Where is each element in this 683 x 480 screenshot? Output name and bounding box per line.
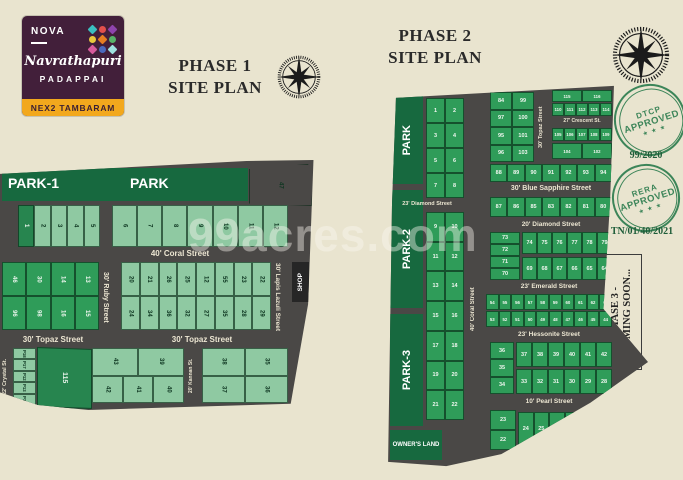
plot: 105: [552, 128, 564, 141]
plot-number: 54: [490, 300, 495, 305]
plot-number: 86: [513, 204, 519, 210]
phase2-park2: PARK-2: [390, 190, 423, 308]
plot-number: 53: [490, 317, 495, 322]
plot-number: 41: [585, 352, 591, 358]
plot: 32: [532, 369, 548, 394]
plot: 3: [51, 205, 67, 247]
plot: 71: [490, 256, 520, 268]
plot: 81: [577, 197, 594, 217]
plot-number: 10: [451, 224, 457, 230]
phase2-plot-row: 333231302928: [516, 369, 612, 394]
phase2-plot-row: 88899091929394: [490, 164, 612, 182]
street-label-hessonite: 23' Hessonite Street: [486, 331, 612, 338]
plot: 40: [564, 342, 580, 367]
plot-number: 115: [564, 94, 571, 99]
plot: 13: [426, 271, 445, 301]
phase2-park3: PARK-3: [390, 314, 423, 426]
plot: P14: [13, 394, 36, 405]
phase2-plot-row: 105106107108109: [552, 128, 612, 141]
phase2-shop-block: SHOP: [580, 403, 614, 436]
phase1-bottom-right-block: 38353736: [202, 348, 288, 403]
phase1-plan: PARK-1 PARK 47 12345 6789101112 40' Cora…: [0, 158, 316, 410]
plot-number: 29: [585, 379, 591, 385]
plot: 73: [490, 232, 520, 244]
plot: 45: [587, 311, 600, 327]
plot: 1: [18, 205, 34, 247]
plot-number: 13: [432, 283, 438, 289]
plot: 89: [507, 164, 524, 182]
plot-number: 37: [221, 386, 227, 393]
plot-number: 20: [451, 372, 457, 378]
plot-number: 11: [247, 223, 253, 229]
plot: 16: [445, 301, 464, 331]
plot: 49: [536, 311, 549, 327]
plot: 27: [565, 412, 581, 446]
plot-number: 28: [240, 310, 246, 317]
plot: 107: [576, 128, 588, 141]
plot: 82: [560, 197, 577, 217]
gem-grid-icon: [89, 26, 117, 54]
plot: 22: [490, 430, 516, 450]
plot-number: 89: [513, 170, 519, 176]
owners-land-block: OWNER'S LAND: [390, 430, 442, 460]
plot: 97: [490, 110, 512, 128]
plot-number: 26: [165, 276, 171, 283]
street-label-topaz-left: 30' Topaz Street: [0, 335, 118, 344]
plot: 95: [490, 127, 512, 145]
gem-icon: [109, 36, 116, 43]
plot-number: 116: [594, 94, 601, 99]
plot: 22: [445, 390, 464, 420]
plot-number: 65: [586, 266, 592, 272]
plot: 92: [560, 164, 577, 182]
compass-rose-icon: [277, 55, 321, 99]
plot-number: 12: [272, 223, 278, 230]
plot-number: 24: [127, 310, 133, 317]
plot-number: 97: [498, 115, 504, 121]
plot: 14: [445, 271, 464, 301]
plot-number: 46: [11, 276, 17, 283]
plot: 25: [177, 262, 196, 296]
plot: 23: [234, 262, 253, 296]
plot-number: 34: [499, 382, 505, 388]
plot-number: 88: [496, 170, 502, 176]
plot: 46: [574, 311, 587, 327]
phase1-center-block: 20212625125523222434363227352829: [121, 262, 271, 330]
park-label: PARK: [401, 125, 413, 155]
phase2-plot-column: 2322: [490, 410, 516, 450]
plot: 114: [600, 103, 612, 116]
plot-number: 114: [603, 107, 610, 112]
plot-number: 66: [571, 266, 577, 272]
plot-number: 25: [184, 276, 190, 283]
plot: 10: [445, 212, 464, 242]
plot: P12: [13, 371, 36, 382]
plot: 115: [552, 90, 582, 102]
plot-number: 16: [60, 310, 66, 317]
plot-number: 15: [432, 313, 438, 319]
plot-number: 20: [127, 276, 133, 283]
plot-number: 61: [578, 300, 583, 305]
plot: 56: [511, 294, 524, 310]
plot: 20: [445, 361, 464, 391]
plot-number: 14: [451, 283, 457, 289]
plot: 42: [596, 342, 612, 367]
plot-number: 103: [518, 150, 527, 156]
gem-icon: [88, 45, 98, 55]
plot: 11: [426, 242, 445, 272]
phase2-left-column-upper: 12345678: [426, 98, 464, 198]
plot-number: 35: [264, 358, 270, 365]
plot-number: 102: [593, 149, 600, 154]
plot: 13: [75, 262, 99, 296]
plot-number: 59: [553, 300, 558, 305]
phase1-title-line1: PHASE 1: [152, 55, 278, 77]
plot: 32: [177, 296, 196, 330]
plot-number: 28: [601, 379, 607, 385]
shop-label: SHOP: [297, 273, 304, 291]
plot: 35: [490, 359, 514, 376]
plot: 12: [196, 262, 215, 296]
plot-number: 27: [569, 426, 575, 432]
plot-number: 76: [556, 240, 562, 246]
plot-number: 12: [202, 276, 208, 283]
plot-number: 6: [453, 158, 456, 164]
plot-number: 38: [221, 358, 227, 365]
plot: 7: [426, 173, 445, 198]
plot-number: 2: [453, 108, 456, 114]
phase2-plot-row: 110111112113114: [552, 103, 612, 116]
plot-number: 78: [586, 240, 592, 246]
plot: 34: [140, 296, 159, 330]
plot-number: 11: [433, 254, 439, 260]
plot-number: 9: [434, 224, 437, 230]
plot: 101: [512, 127, 534, 145]
plot: 65: [582, 257, 597, 280]
plot-number: 1: [23, 224, 29, 227]
plot-number: 47: [565, 317, 570, 322]
plot-number: 94: [600, 170, 606, 176]
park3-label: PARK-3: [401, 350, 413, 390]
plot: 48: [549, 311, 562, 327]
plot: 61: [574, 294, 587, 310]
plot: 54: [486, 294, 499, 310]
plot: 35: [245, 348, 288, 376]
plot-number: 8: [453, 183, 456, 189]
plot-number: 34: [146, 310, 152, 317]
plot: 24: [518, 412, 534, 446]
gem-icon: [98, 35, 108, 45]
plot-number: 40: [569, 352, 575, 358]
phase1-park-strip: PARK-1 PARK: [2, 168, 248, 201]
plot-number: 92: [565, 170, 571, 176]
phase2-plot-row: 87868583828180: [490, 197, 612, 217]
plot-number: 107: [578, 132, 585, 137]
brand-name: NOVA: [31, 26, 65, 37]
plot-number: 85: [530, 204, 536, 210]
plot: 15: [426, 301, 445, 331]
gem-icon: [99, 26, 106, 33]
plot-number: 9: [197, 224, 203, 227]
plot: 46: [2, 262, 26, 296]
plot: 72: [490, 244, 520, 256]
plot: 102: [582, 143, 612, 159]
plot: 12: [445, 242, 464, 272]
plot: 40: [153, 376, 184, 404]
street-label-emerald: 23' Emerald Street: [486, 283, 612, 290]
plot-number: 35: [499, 365, 505, 371]
phase2-plot-row: 54555657585960616263: [486, 294, 612, 310]
plot-number: 109: [602, 132, 609, 137]
plot: 47: [249, 164, 312, 206]
plot-number: 10: [222, 223, 228, 230]
gem-icon: [108, 25, 118, 35]
phase2-park: PARK: [390, 96, 423, 184]
plot: 55: [215, 262, 234, 296]
plot-number: 105: [554, 132, 561, 137]
plot-number: 42: [104, 386, 110, 393]
phase2-plot-row: 373839404142: [516, 342, 612, 367]
plot-number: 5: [89, 224, 95, 227]
plot-number: 79: [601, 240, 607, 246]
plot: 5: [84, 205, 100, 247]
shop-label: SHOP: [589, 414, 606, 427]
plot-number: 3: [434, 133, 437, 139]
plot-number: 7: [147, 224, 153, 227]
plot: 5: [426, 148, 445, 173]
plot-number: 13: [84, 276, 90, 283]
logo-divider: [31, 42, 47, 44]
owners-land-label: OWNER'S LAND: [393, 442, 440, 448]
plot: 60: [562, 294, 575, 310]
plot-number: 39: [553, 352, 559, 358]
plot-number: 22: [451, 402, 457, 408]
plot-number: 110: [555, 107, 562, 112]
plot-number: 72: [502, 247, 508, 253]
plot-number: 21: [432, 402, 438, 408]
plot-number: 106: [566, 132, 573, 137]
phase2-title: PHASE 2 SITE PLAN: [372, 25, 498, 69]
plot-number: 69: [526, 266, 532, 272]
plot-number: 36: [499, 348, 505, 354]
plot: 21: [140, 262, 159, 296]
plot-number: 52: [503, 317, 508, 322]
plot: 90: [525, 164, 542, 182]
plot-number: 58: [540, 300, 545, 305]
plot-number: 39: [158, 358, 164, 365]
plot: 69: [522, 257, 537, 280]
plot: 55: [499, 294, 512, 310]
plot: 36: [490, 342, 514, 359]
plot-number: 37: [521, 352, 527, 358]
plot: 1: [426, 98, 445, 123]
phase2-plot-row: 747576777879: [522, 232, 612, 254]
plot: 38: [202, 348, 245, 376]
phase2-plot-row: 53525150494847464544: [486, 311, 612, 327]
plot: 78: [582, 232, 597, 254]
plot: 77: [567, 232, 582, 254]
plot: 51: [511, 311, 524, 327]
street-label-diamond: 20' Diamond Street: [490, 221, 612, 228]
plot-number: 42: [601, 352, 607, 358]
plot: 39: [548, 342, 564, 367]
plot-number: 41: [135, 386, 141, 393]
plot-number: 96: [498, 150, 504, 156]
plot-number: 16: [451, 313, 457, 319]
plot-number: 47: [278, 182, 284, 189]
phase1-bottom-left-block: 4339424140: [92, 348, 184, 403]
plot-number: 22: [259, 276, 265, 283]
plot: 94: [595, 164, 612, 182]
plot: 2: [34, 205, 50, 247]
plot: 33: [516, 369, 532, 394]
plot: 11: [238, 205, 263, 247]
street-label-diamond-small: 23' Diamond Street: [388, 201, 466, 207]
plot-number: 111: [567, 107, 574, 112]
phase2-title-line1: PHASE 2: [372, 25, 498, 47]
phase2-plot-row: 24252627: [518, 412, 580, 446]
plot: 24: [121, 296, 140, 330]
plot: P18: [13, 348, 36, 359]
plot: 43: [92, 348, 138, 376]
plot: 91: [542, 164, 559, 182]
plot-number: 51: [515, 317, 520, 322]
plot: 103: [512, 145, 534, 163]
plot-number: 96: [11, 310, 17, 317]
plot: 8: [445, 173, 464, 198]
plot-number: 4: [453, 133, 456, 139]
plot: 30: [26, 262, 50, 296]
plot-number: 7: [434, 183, 437, 189]
plot: 29: [252, 296, 271, 330]
plot: 23: [490, 410, 516, 430]
plot-number: 26: [554, 426, 560, 432]
plot-number: 18: [451, 343, 457, 349]
project-name: Navrathapuri: [22, 54, 124, 69]
plot-number: 104: [563, 149, 570, 154]
plot: 16: [51, 296, 75, 330]
plot: 50: [524, 311, 537, 327]
plot-number: 73: [502, 235, 508, 241]
site-plan-poster: { "page": { "watermark": "99acres.com" }…: [0, 0, 683, 480]
plot: 53: [486, 311, 499, 327]
phase1-left-block: 4630141396981615: [2, 262, 99, 330]
street-label-coral: 40' Coral Street: [80, 249, 280, 258]
plot-number: 40: [166, 386, 172, 393]
plot: 115: [37, 347, 92, 409]
plot-number: 31: [553, 379, 559, 385]
plot-number: 56: [515, 300, 520, 305]
plot-number: 70: [502, 271, 508, 277]
plot: 41: [123, 376, 154, 404]
plot-number: 43: [112, 358, 118, 365]
phase2-plot-column: 363534: [490, 342, 514, 394]
street-label-pearl: 10' Pearl Street: [486, 398, 612, 405]
plot-number: 45: [591, 317, 596, 322]
plot-number: 46: [578, 317, 583, 322]
plot: 26: [549, 412, 565, 446]
plot-number: 60: [565, 300, 570, 305]
gem-icon: [88, 25, 98, 35]
park-label: PARK: [130, 175, 169, 191]
plot: 88: [490, 164, 507, 182]
plot-number: 90: [530, 170, 536, 176]
plot-number: 32: [184, 310, 190, 317]
rera-approval-number: TN/01/40/2021: [602, 226, 682, 237]
plot: 116: [582, 90, 612, 102]
plot: 8: [162, 205, 187, 247]
plot: 99: [512, 92, 534, 110]
street-label-ruby: 30' Ruby Street: [102, 264, 109, 330]
plot: 66: [567, 257, 582, 280]
plot-number: 67: [556, 266, 562, 272]
park1-label: PARK-1: [8, 175, 59, 191]
plot: 70: [490, 268, 520, 280]
plot: 111: [564, 103, 576, 116]
plot-number: 30: [569, 379, 575, 385]
plot: 9: [187, 205, 212, 247]
street-label-kannan: 20' Kannan St.: [188, 350, 194, 402]
plot: 15: [75, 296, 99, 330]
plot: 3: [426, 123, 445, 148]
plot: 21: [426, 390, 445, 420]
plot-number: 27: [202, 310, 208, 317]
plot-number: 55: [503, 300, 508, 305]
plot-number: P12: [22, 373, 27, 381]
plot-number: 83: [548, 204, 554, 210]
plot: 96: [490, 145, 512, 163]
phase1-title: PHASE 1 SITE PLAN: [152, 55, 278, 99]
plot-number: 87: [496, 204, 502, 210]
plot-number: 8: [172, 224, 178, 227]
plot: 27: [196, 296, 215, 330]
phase1-top-block-b: 6789101112: [112, 205, 288, 247]
plot-number: 22: [500, 437, 506, 443]
plot: 26: [159, 262, 178, 296]
plot: 36: [245, 376, 288, 404]
plot-number: 23: [240, 276, 246, 283]
plot: 113: [588, 103, 600, 116]
plot: 37: [202, 376, 245, 404]
plot-number: 15: [84, 310, 90, 317]
plot-number: P17: [22, 361, 27, 369]
plot: 9: [426, 212, 445, 242]
plot-number: 19: [432, 372, 438, 378]
street-label-crescent: 27' Crescent St.: [550, 118, 614, 124]
plot-number: 50: [528, 317, 533, 322]
plot: 84: [490, 92, 512, 110]
gem-icon: [89, 36, 96, 43]
plot: 2: [445, 98, 464, 123]
plot-number: P18: [22, 350, 27, 358]
plot-number: 36: [165, 310, 171, 317]
plot: 87: [490, 197, 507, 217]
plot: P13: [13, 382, 36, 393]
phase2-plot-row: 104102: [552, 143, 612, 159]
plot: 29: [580, 369, 596, 394]
phase2-left-column-lower: 910111213141516171819202122: [426, 212, 464, 420]
plot: 6: [112, 205, 137, 247]
project-location: PADAPPAI: [22, 74, 124, 84]
plot-number: 36: [264, 386, 270, 393]
plot: 62: [587, 294, 600, 310]
plot: 104: [552, 143, 582, 159]
phase1-title-line2: SITE PLAN: [152, 77, 278, 99]
plot: 74: [522, 232, 537, 254]
plot-number: 108: [590, 132, 597, 137]
plot: 93: [577, 164, 594, 182]
plot-number: 77: [571, 240, 577, 246]
